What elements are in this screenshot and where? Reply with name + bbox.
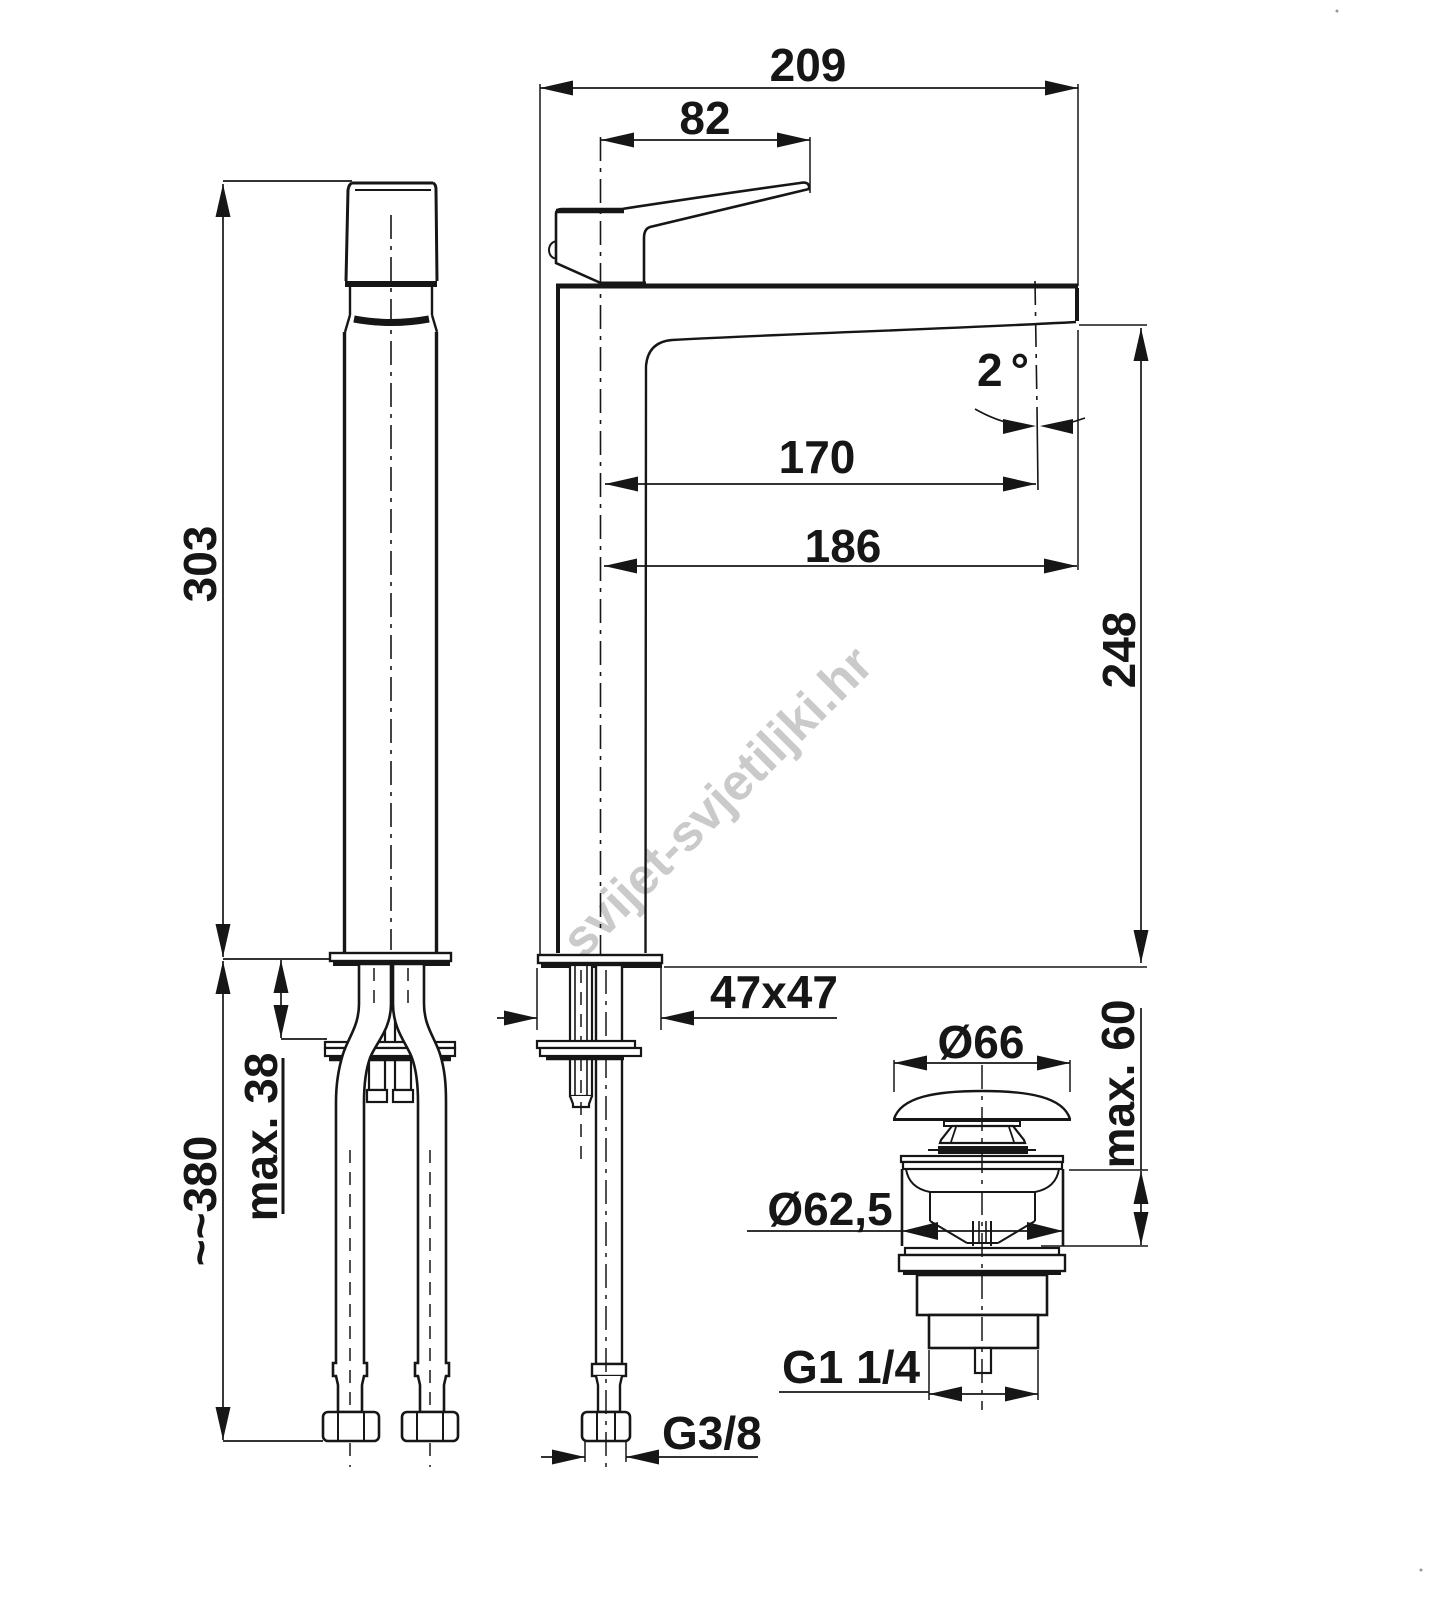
svg-text:max. 60: max. 60 [1092, 1000, 1144, 1169]
svg-text:303: 303 [174, 526, 226, 603]
svg-text:248: 248 [1093, 612, 1145, 689]
svg-text:~~380: ~~380 [174, 1136, 226, 1266]
svg-text:47x47: 47x47 [710, 966, 838, 1018]
svg-text:170: 170 [779, 431, 856, 483]
svg-text:Ø66: Ø66 [938, 1016, 1025, 1068]
svg-text:186: 186 [805, 520, 882, 572]
svg-text:G1 1/4: G1 1/4 [782, 1341, 921, 1393]
svg-text:2°: 2° [977, 344, 1029, 396]
svg-text:Ø62,5: Ø62,5 [767, 1183, 892, 1235]
svg-text:G3/8: G3/8 [662, 1407, 762, 1459]
svg-text:82: 82 [679, 92, 730, 144]
svg-text:max. 38: max. 38 [235, 1053, 287, 1222]
svg-text:209: 209 [770, 39, 847, 91]
